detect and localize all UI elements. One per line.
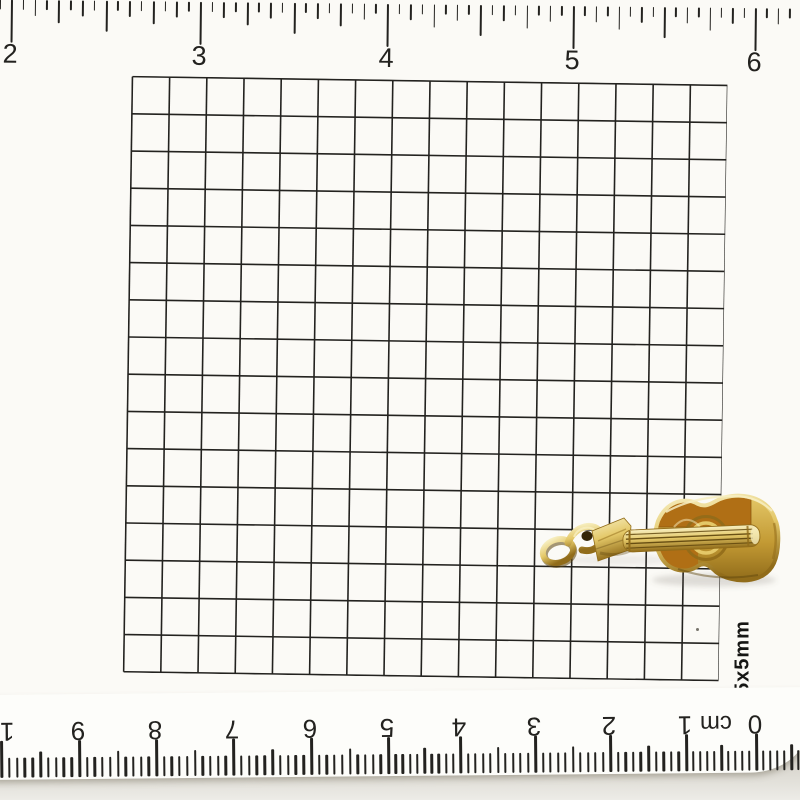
ruler-tick [515,5,517,15]
ruler-tick [132,757,135,777]
ruler-tick [194,750,197,776]
ruler-tick [474,753,477,773]
ruler-tick [279,755,282,775]
ruler-tick [140,756,143,776]
ruler-tick [178,756,181,776]
ruler-tick [200,2,203,45]
ruler-tick [766,8,768,18]
ruler-tick [482,753,485,773]
ruler-tick [256,755,259,775]
ruler-tick [416,754,419,774]
ruler-tick [349,748,352,774]
ruler-tick [11,0,14,43]
ruler-tick [632,752,635,772]
ruler-tick [124,757,127,777]
ruler-tick [63,757,66,777]
ruler-tick [630,7,632,17]
ruler-tick [271,749,274,775]
ruler-tick [58,0,60,23]
ruler-tick [152,1,154,24]
ruler-tick [295,755,298,775]
ruler-tick [457,5,459,21]
ruler-tick [480,5,482,36]
ruler-tick [101,757,104,777]
top-inch-ruler: 23456 [0,0,800,91]
ruler-tick [47,757,50,777]
ruler-tick [258,2,260,12]
ruler-tick [305,3,307,13]
ruler-tick [176,2,178,18]
dust-speck [696,628,699,631]
ruler-tick [778,8,780,24]
ruler-tick [572,746,575,772]
ruler-tick [433,4,435,27]
top-ruler-labels: 23456 [0,0,800,9]
cm-label: 1 [678,709,693,740]
cm-label: 4 [452,711,467,742]
ruler-tick [117,1,119,11]
inch-label: 3 [191,41,207,72]
ruler-tick [248,755,251,775]
ruler-tick [732,8,734,24]
ruler-tick [489,753,492,773]
ruler-tick [8,758,11,778]
ruler-tick [16,758,19,778]
ruler-tick [776,750,779,770]
ruler-tick [379,754,382,774]
ruler-tick [491,5,493,15]
ruler-tick [235,2,237,12]
ruler-tick [317,3,319,19]
ruler-tick [70,0,72,10]
bottom-ruler-labels: 109876543210cm [0,687,800,695]
ruler-tick [790,744,793,770]
ruler-tick [0,0,1,10]
inch-label: 5 [564,45,580,76]
ruler-tick [769,750,772,770]
ruler-tick [762,751,765,771]
ruler-tick [754,8,757,51]
ruler-tick [386,4,389,47]
ruler-tick [201,756,204,776]
ruler-tick [430,754,433,774]
bottom-cm-ruler: 109876543210cm [0,687,800,780]
ruler-tick [340,3,342,26]
ruler-tick [105,1,107,32]
ruler-tick [594,752,597,772]
ruler-tick [364,754,367,774]
ruler-tick [675,7,677,17]
ruler-tick [789,8,791,18]
ruler-tick [527,753,530,773]
cm-label: 2 [602,710,617,741]
ruler-tick [445,5,447,15]
ruler-tick [564,752,567,772]
ruler-tick [82,0,84,16]
ruler-tick [655,752,658,772]
ruler-tick [596,6,598,22]
ruler-tick [117,751,120,777]
ruler-tick [402,754,405,774]
ruler-tick [46,0,48,10]
ruler-tick [720,745,723,771]
bail-hole [582,531,593,541]
cm-label: 0 [748,709,763,740]
ruler-tick [141,1,143,11]
ruler-tick [550,6,552,22]
ruler-tick [318,755,321,775]
ruler-tick [302,755,305,775]
ruler-tick [504,753,507,773]
ruler-tick [607,6,609,16]
bottom-ruler-ticks [0,687,800,695]
ruler-tick [70,757,73,777]
photo-stage: 23456 5x5mm [0,0,800,800]
ruler-tick [164,1,166,11]
ruler-tick [579,752,582,772]
ruler-tick [468,5,470,15]
cm-label: 5 [380,712,395,743]
ruler-tick [223,2,225,18]
ruler-tick [438,754,441,774]
cm-label: 9 [71,715,86,746]
ruler-tick [561,6,563,16]
ruler-tick [584,6,586,16]
nut [629,531,631,551]
ruler-tick [171,756,174,776]
ruler-tick [217,756,220,776]
ruler-tick [34,0,36,16]
ruler-tick [94,1,96,11]
ruler-tick [617,752,620,772]
ruler-tick [709,8,711,31]
ruler-tick [526,6,528,29]
ruler-tick [741,751,744,771]
ruler-tick [375,4,377,14]
ruler-tick [86,757,89,777]
ruler-tick [356,754,359,774]
ruler-tick [647,746,650,772]
guitar-charm [526,481,796,593]
ruler-tick [549,753,552,773]
ruler-tick [287,755,290,775]
ruler-tick [293,3,295,34]
ruler-tick [698,7,700,17]
ruler-tick [270,3,272,19]
ruler-tick [557,752,560,772]
ruler-tick [39,751,42,777]
ruler-tick [423,748,426,774]
ruler-tick [641,7,643,23]
ruler-tick [692,751,695,771]
ruler-tick [246,2,248,25]
ruler-tick [363,4,365,20]
ruler-tick [713,751,716,771]
ruler-tick [23,0,25,10]
ruler-tick [163,756,166,776]
ruler-tick [706,751,709,771]
top-ruler-ticks [0,0,800,9]
ruler-tick [699,751,702,771]
ruler-tick [31,758,34,778]
ruler-tick [94,757,97,777]
ruler-tick [503,5,505,21]
bridge-ridge [747,526,748,546]
ruler-tick [687,7,689,23]
ruler-tick [328,3,330,13]
ruler-tick [602,752,605,772]
inch-label: 6 [746,47,762,78]
ruler-tick [398,4,400,14]
ruler-tick [326,755,329,775]
ruler-tick [743,8,745,18]
ruler-tick [24,758,27,778]
cm-label: 3 [527,711,542,742]
grid-scale-label: 5x5mm [732,620,755,694]
ruler-tick [662,751,665,771]
ruler-tick [410,4,412,20]
ruler-tick [394,754,397,774]
ruler-tick [225,756,228,776]
cm-unit-label: cm [700,709,732,737]
ruler-tick [212,2,214,12]
ruler-tick [445,754,448,774]
cm-label: 8 [148,714,163,745]
ruler-tick [783,750,786,770]
ruler-tick [618,7,620,30]
ruler-tick [624,752,627,772]
ruler-tick [240,756,243,776]
ruler-tick [678,751,681,771]
ruler-tick [452,753,455,773]
ruler-tick [148,756,151,776]
ruler-tick [186,756,189,776]
ruler-tick [512,753,515,773]
ruler-tick [727,751,730,771]
ruler-tick [538,6,540,16]
cm-label: 10 [0,716,15,747]
ruler-tick [109,757,112,777]
ruler-tick [282,3,284,13]
ruler-tick [129,1,131,17]
ruler-tick [188,2,190,12]
cm-label: 6 [303,713,318,744]
ruler-tick [664,7,666,38]
ruler-tick [409,754,412,774]
ruler-tick [670,751,673,771]
ruler-tick [519,753,522,773]
inch-label: 2 [2,39,18,70]
cm-label: 7 [225,714,240,745]
ruler-tick [652,7,654,17]
ruler-tick [542,753,545,773]
ruler-tick [467,753,470,773]
ruler-tick [55,757,58,777]
ruler-tick [372,754,375,774]
ruler-tick [263,755,266,775]
ruler-tick [352,4,354,14]
ruler-tick [640,752,643,772]
ruler-tick [341,755,344,775]
ruler-tick [734,751,737,771]
ruler-tick [209,756,212,776]
ruler-tick [422,4,424,14]
ruler-tick [497,747,500,773]
ruler-tick [572,6,575,49]
ruler-tick [587,752,590,772]
ruler-tick [333,755,336,775]
ruler-tick [748,751,751,771]
inch-label: 4 [378,43,394,74]
ruler-tick [721,8,723,18]
